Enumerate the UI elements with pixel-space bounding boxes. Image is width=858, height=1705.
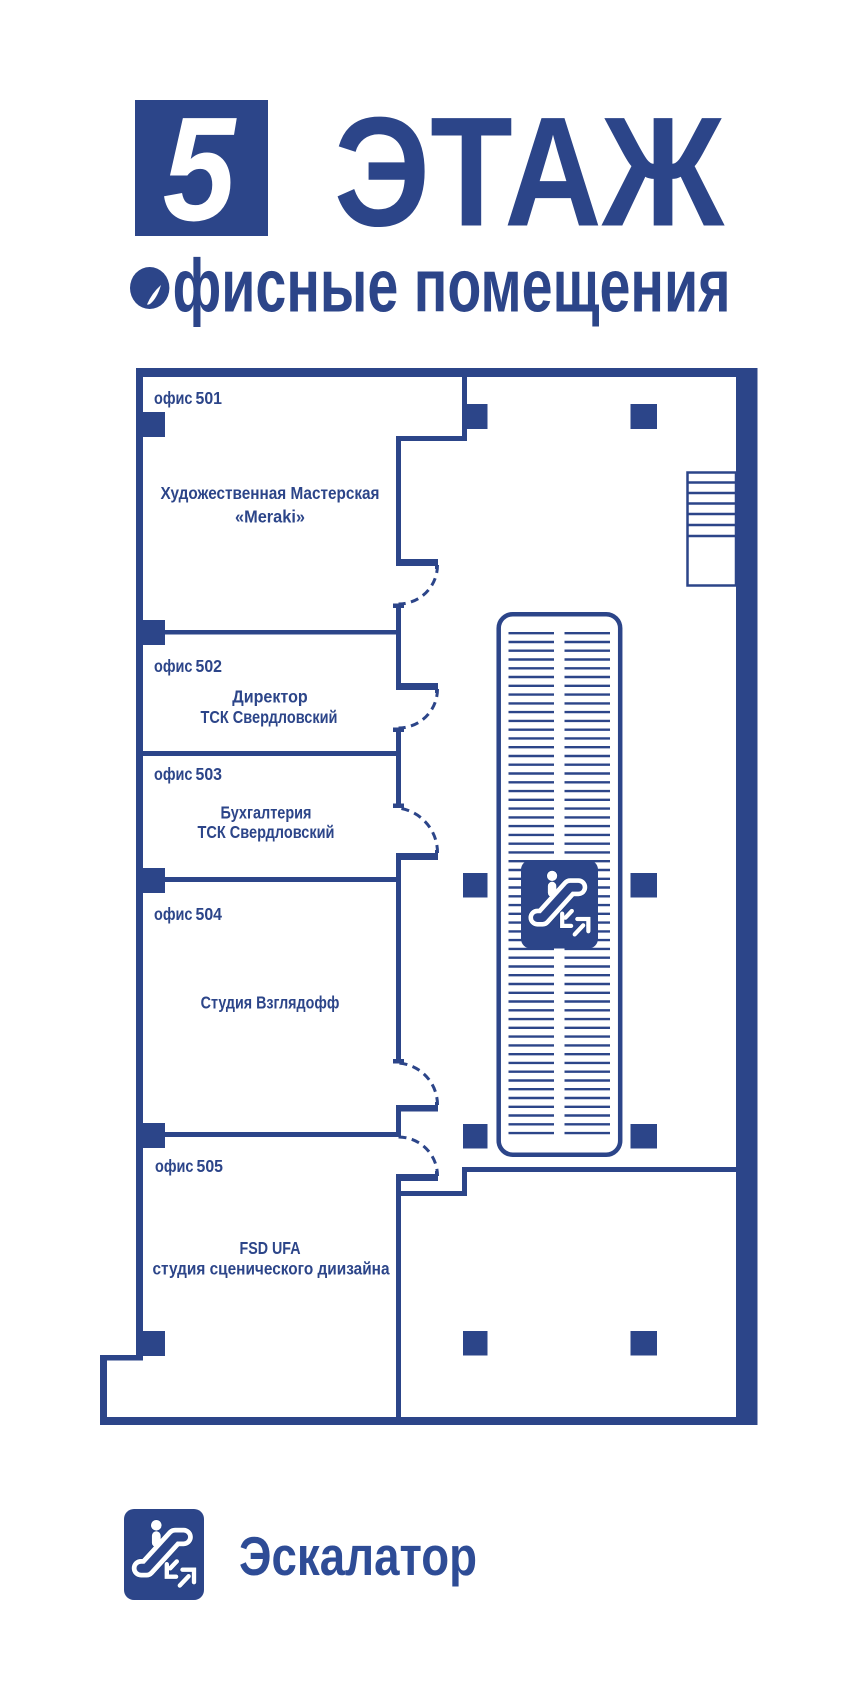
svg-text:FSD UFA: FSD UFA	[240, 1238, 301, 1258]
svg-text:офис: офис	[155, 1156, 194, 1176]
svg-text:5: 5	[163, 86, 238, 252]
svg-text:503: 503	[196, 764, 223, 784]
svg-text:фисные помещения: фисные помещения	[173, 244, 731, 328]
svg-text:офис: офис	[154, 904, 193, 924]
svg-text:502: 502	[196, 656, 223, 676]
svg-text:Художественная Мастерская: Художественная Мастерская	[161, 483, 380, 503]
svg-text:Директор: Директор	[232, 686, 308, 706]
svg-text:«Meraki»: «Meraki»	[235, 507, 305, 527]
svg-text:ЭТАЖ: ЭТАЖ	[334, 86, 725, 260]
svg-text:Бухгалтерия: Бухгалтерия	[221, 803, 312, 823]
svg-text:ТСК Свердловский: ТСК Свердловский	[198, 822, 335, 842]
svg-text:офис: офис	[154, 388, 193, 408]
svg-text:студия сценического диизайна: студия сценического диизайна	[153, 1259, 390, 1279]
svg-text:504: 504	[196, 904, 223, 924]
svg-text:501: 501	[196, 388, 223, 408]
svg-text:Эскалатор: Эскалатор	[239, 1525, 477, 1587]
svg-text:505: 505	[197, 1156, 224, 1176]
svg-text:офис: офис	[154, 764, 193, 784]
svg-text:офис: офис	[154, 656, 193, 676]
svg-text:Студия Взглядофф: Студия Взглядофф	[201, 993, 340, 1013]
svg-text:ТСК Свердловский: ТСК Свердловский	[201, 707, 338, 727]
